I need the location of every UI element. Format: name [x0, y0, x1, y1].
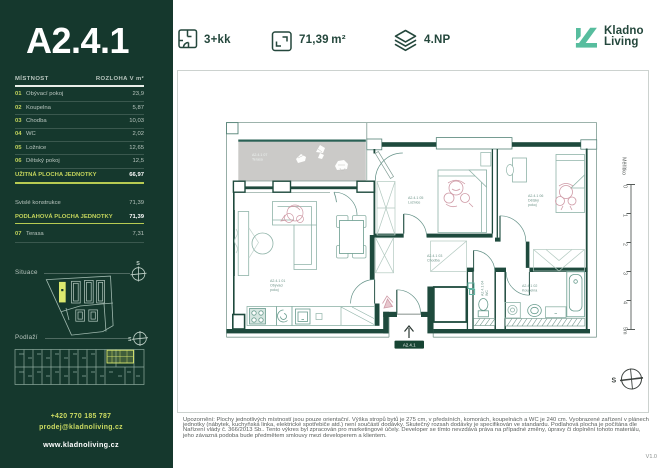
svg-text:pokoj: pokoj	[528, 203, 537, 207]
svg-text:A2.4.1 05: A2.4.1 05	[408, 196, 423, 200]
svg-text:A2.4.1 03: A2.4.1 03	[427, 254, 442, 258]
svg-text:0: 0	[622, 185, 628, 188]
svg-text:S: S	[136, 261, 140, 267]
svg-text:3: 3	[622, 272, 628, 275]
svg-text:Dětský: Dětský	[528, 199, 539, 203]
svg-text:Ložnice: Ložnice	[408, 201, 420, 205]
svg-text:A2.4.1 04: A2.4.1 04	[481, 281, 485, 296]
svg-text:A2.4.1 07: A2.4.1 07	[252, 153, 267, 157]
svg-text:S: S	[612, 378, 617, 385]
svg-text:Terasa: Terasa	[252, 158, 263, 162]
svg-text:WC: WC	[485, 290, 489, 296]
svg-text:4: 4	[622, 301, 628, 304]
svg-text:A2.4.1 02: A2.4.1 02	[522, 284, 537, 288]
svg-text:S: S	[128, 337, 132, 343]
svg-text:A2.4.1 06: A2.4.1 06	[528, 194, 543, 198]
svg-text:Koupelna: Koupelna	[522, 289, 537, 293]
svg-text:A2.4.1 01: A2.4.1 01	[270, 279, 285, 283]
svg-text:1: 1	[622, 214, 628, 217]
svg-text:Chodba: Chodba	[427, 259, 440, 263]
svg-text:A2.4.1: A2.4.1	[403, 342, 416, 347]
svg-text:pokoj: pokoj	[270, 288, 279, 292]
svg-text:5m: 5m	[622, 327, 628, 335]
svg-text:2: 2	[622, 243, 628, 246]
svg-text:Měřítko: Měřítko	[620, 157, 626, 175]
svg-text:Obývací: Obývací	[270, 284, 283, 288]
